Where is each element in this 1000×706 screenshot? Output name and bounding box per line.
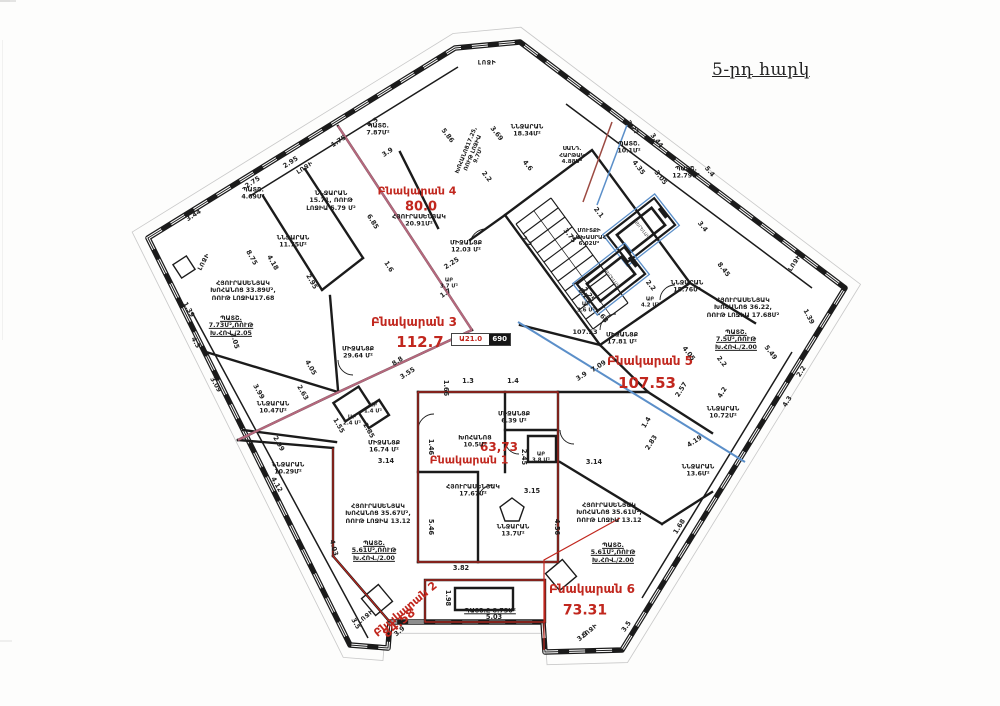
- floor-plan-page: 5-րդ հարկ Ա21.0 690 Բնակարան 480.0Բնակար…: [0, 0, 1000, 706]
- elevation-marker-value: Ա21.0: [452, 334, 489, 345]
- elevation-marker: Ա21.0 690: [451, 333, 511, 346]
- elevation-marker-code: 690: [489, 334, 510, 345]
- floor-title: 5-րդ հարկ: [712, 60, 810, 80]
- plan-drawing: [0, 0, 1000, 706]
- outer-wall: [148, 42, 845, 652]
